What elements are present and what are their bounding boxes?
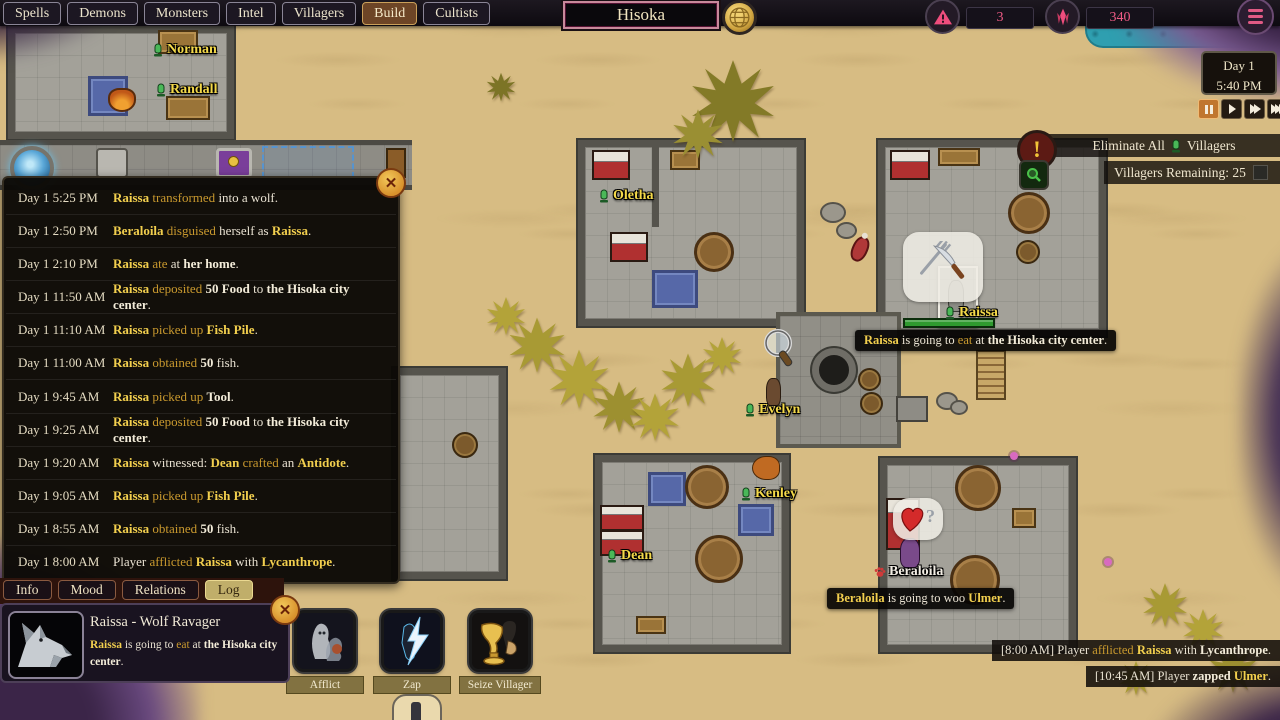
notification-1[interactable]: [8:00 AM] Player afflicted Raissa with L… xyxy=(992,640,1280,661)
villager-marker-icon xyxy=(155,83,167,97)
barrel xyxy=(452,432,478,458)
building-left-mid[interactable] xyxy=(393,368,506,579)
town-name: Hisoka xyxy=(617,5,665,25)
log-entry-text: Raissa picked up Fish Pile. xyxy=(113,322,396,338)
log-entry: Day 1 9:25 AMRaissa deposited 50 Food to… xyxy=(6,414,396,447)
log-entry-time: Day 1 9:20 AM xyxy=(18,455,113,471)
town-name-plate[interactable]: Hisoka xyxy=(563,1,719,29)
villager-label-evelyn[interactable]: Evelyn xyxy=(744,402,800,418)
log-entry-text: Raissa transformed into a wolf. xyxy=(113,190,396,206)
cultist-capsule[interactable] xyxy=(392,694,442,720)
event-log-panel: Day 1 5:25 PMRaissa transformed into a w… xyxy=(2,176,400,584)
villager-name: Kenley xyxy=(755,486,797,502)
log-entry-time: Day 1 9:05 AM xyxy=(18,488,113,504)
villager-name: Oletha xyxy=(613,188,653,204)
table xyxy=(955,465,1001,511)
log-entry-time: Day 1 9:25 AM xyxy=(18,422,113,438)
world-coin-icon[interactable] xyxy=(722,0,757,35)
tab-demons[interactable]: Demons xyxy=(67,2,138,25)
magnifier-item[interactable] xyxy=(758,326,798,368)
carpet xyxy=(648,472,686,506)
well xyxy=(812,348,856,392)
top-bar: SpellsDemonsMonstersIntelVillagersBuildC… xyxy=(0,0,1280,26)
barrel xyxy=(860,392,883,415)
bed xyxy=(890,150,930,180)
map-tooltip-1: Raissa is going to eat at the Hisoka cit… xyxy=(855,330,1116,351)
svg-text:?: ? xyxy=(926,506,935,526)
play-button[interactable] xyxy=(1221,99,1242,119)
event-log-close-button[interactable]: ✕ xyxy=(376,168,406,198)
seize-villager-icon xyxy=(472,613,528,669)
log-entry-text: Raissa witnessed: Dean crafted an Antido… xyxy=(113,455,396,471)
barrel xyxy=(1016,240,1040,264)
map-tooltip-2: Beraloila is going to woo Ulmer. xyxy=(827,588,1014,609)
chest xyxy=(1012,508,1036,528)
warning-resource: 3 xyxy=(925,2,1034,34)
meat xyxy=(847,234,872,264)
log-entry-time: Day 1 5:25 PM xyxy=(18,190,113,206)
kenley-fox-sprite[interactable] xyxy=(752,456,780,480)
pause-button[interactable] xyxy=(1198,99,1219,119)
villager-label-norman[interactable]: Norman xyxy=(152,42,217,58)
log-entry-text: Raissa picked up Tool. xyxy=(113,389,396,405)
table xyxy=(1008,192,1050,234)
seize-villager-button[interactable] xyxy=(469,610,531,672)
log-entry-time: Day 1 8:55 AM xyxy=(18,521,113,537)
villager-marker-icon xyxy=(1170,139,1182,153)
log-entry: Day 1 9:45 AMRaissa picked up Tool. xyxy=(6,380,396,413)
tab-cultists[interactable]: Cultists xyxy=(423,2,490,25)
objective-checkbox[interactable] xyxy=(1253,165,1268,180)
log-entry: Day 1 8:55 AMRaissa obtained 50 fish. xyxy=(6,513,396,546)
log-entry: Day 1 11:00 AMRaissa obtained 50 fish. xyxy=(6,347,396,380)
villager-marker-icon xyxy=(606,549,618,563)
villager-label-raissa[interactable]: Raissa xyxy=(944,305,998,321)
fastest-forward-button[interactable] xyxy=(1267,99,1280,119)
wood-pile xyxy=(976,350,1006,400)
log-entry: Day 1 8:00 AMPlayer afflicted Raissa wit… xyxy=(6,546,396,578)
bed xyxy=(610,232,648,262)
clock-panel: Day 1 5:40 PM xyxy=(1201,51,1277,95)
zap-label: Zap xyxy=(373,676,451,694)
flower xyxy=(1104,558,1112,566)
log-entry-text: Raissa deposited 50 Food to the Hisoka c… xyxy=(113,281,396,313)
warning-triangle-icon[interactable] xyxy=(925,0,960,34)
carpet xyxy=(738,504,774,536)
carpet xyxy=(652,270,698,308)
inspector-tab-info[interactable]: Info xyxy=(3,580,52,600)
log-entry: Day 1 11:50 AMRaissa deposited 50 Food t… xyxy=(6,281,396,314)
bed xyxy=(592,150,630,180)
blueprint-sketch xyxy=(262,146,354,178)
rock xyxy=(950,400,968,415)
speed-controls xyxy=(1198,99,1280,119)
essence-count: 340 xyxy=(1086,7,1154,29)
villager-name: Norman xyxy=(167,42,217,58)
log-entry-text: Raissa ate at her home. xyxy=(113,256,396,272)
log-entry-text: Raissa obtained 50 fish. xyxy=(113,355,396,371)
afflict-label: Afflict xyxy=(286,676,364,694)
seize-villager-label: Seize Villager xyxy=(459,676,541,694)
log-entry: Day 1 11:10 AMRaissa picked up Fish Pile… xyxy=(6,314,396,347)
eat-thought-bubble xyxy=(903,232,983,302)
objective-text-suffix: Villagers xyxy=(1187,138,1236,154)
bed xyxy=(600,505,644,531)
tab-spells[interactable]: Spells xyxy=(3,2,61,25)
log-entry-text: Raissa picked up Fish Pile. xyxy=(113,488,396,504)
log-entry: Day 1 9:05 AMRaissa picked up Fish Pile. xyxy=(6,480,396,513)
log-entry: Day 1 5:25 PMRaissa transformed into a w… xyxy=(6,182,396,215)
villager-label-beraloila[interactable]: Beraloila xyxy=(874,564,943,580)
tab-intel[interactable]: Intel xyxy=(226,2,276,25)
game-screen: ? NormanRandallOlethaEvelynKenleyDeanRai… xyxy=(0,0,1280,720)
inspector-tabs: InfoMoodRelationsLog xyxy=(3,580,253,600)
log-entry-text: Raissa obtained 50 fish. xyxy=(113,521,396,537)
villager-name: Dean xyxy=(621,548,652,564)
log-entry-time: Day 1 9:45 AM xyxy=(18,389,113,405)
clock-day: Day 1 xyxy=(1203,56,1275,76)
log-entry-time: Day 1 2:10 PM xyxy=(18,256,113,272)
villager-label-dean[interactable]: Dean xyxy=(606,548,652,564)
villager-label-kenley[interactable]: Kenley xyxy=(740,486,797,502)
inspector-close-button[interactable]: ✕ xyxy=(270,595,300,625)
log-entry-text: Raissa deposited 50 Food to the Hisoka c… xyxy=(113,414,396,446)
woo-thought-bubble: ? xyxy=(893,498,943,540)
altar xyxy=(96,148,128,178)
shelf xyxy=(938,148,980,166)
portrait-frame[interactable] xyxy=(8,611,84,679)
log-entry-text: Player afflicted Raissa with Lycanthrope… xyxy=(113,554,396,570)
tab-monsters[interactable]: Monsters xyxy=(144,2,220,25)
tab-villagers[interactable]: Villagers xyxy=(282,2,356,25)
log-entry: Day 1 2:10 PMRaissa ate at her home. xyxy=(6,248,396,281)
cart xyxy=(896,396,928,422)
notification-stack: [8:00 AM] Player afflicted Raissa with L… xyxy=(992,640,1280,687)
crystal-icon[interactable] xyxy=(1045,0,1080,34)
lute xyxy=(636,616,666,634)
villager-label-randall[interactable]: Randall xyxy=(155,82,217,98)
villager-marker-icon xyxy=(740,487,752,501)
log-entry-time: Day 1 11:00 AM xyxy=(18,355,113,371)
villager-marker-icon xyxy=(744,403,756,417)
villagers-remaining-bar: Villagers Remaining: 25 xyxy=(1104,161,1280,184)
wolf-portrait xyxy=(10,613,78,673)
table xyxy=(695,535,743,583)
fork-knife-icon xyxy=(915,241,971,293)
zap-button[interactable] xyxy=(381,610,443,672)
warning-count: 3 xyxy=(966,7,1034,29)
treasure-chest xyxy=(216,148,252,178)
clock-time: 5:40 PM xyxy=(1203,76,1275,96)
paw-icon xyxy=(874,565,886,579)
campfire xyxy=(108,88,136,112)
essence-resource: 340 xyxy=(1045,2,1154,34)
villager-label-oletha[interactable]: Oletha xyxy=(598,188,653,204)
objective-banner: Eliminate All Villagers xyxy=(1048,134,1280,157)
villager-name: Evelyn xyxy=(759,402,800,418)
inspector-title: Raissa - Wolf Ravager xyxy=(90,614,220,631)
log-entry: Day 1 2:50 PMBeraloila disguised herself… xyxy=(6,215,396,248)
rock xyxy=(820,202,846,223)
log-entry-time: Day 1 11:10 AM xyxy=(18,322,113,338)
log-entry-text: Beraloila disguised herself as Raissa. xyxy=(113,223,396,239)
log-entry-time: Day 1 11:50 AM xyxy=(18,289,113,305)
villager-name: Beraloila xyxy=(889,564,943,580)
fast-forward-button[interactable] xyxy=(1244,99,1265,119)
inspector-tab-mood[interactable]: Mood xyxy=(58,580,116,600)
table xyxy=(694,232,734,272)
inspector-status-text: Raissa is going to eat at the Hisoka cit… xyxy=(90,637,282,670)
villager-marker-icon xyxy=(598,189,610,203)
afflict-icon xyxy=(297,613,353,669)
main-menu-tabs: SpellsDemonsMonstersIntelVillagersBuildC… xyxy=(3,2,490,25)
notification-2[interactable]: [10:45 AM] Player zapped Ulmer. xyxy=(1086,666,1280,687)
inspector-tab-log[interactable]: Log xyxy=(205,580,253,600)
flower xyxy=(1010,452,1018,460)
inspector-panel: Raissa - Wolf Ravager Raissa is going to… xyxy=(0,603,290,683)
villager-marker-icon xyxy=(152,43,164,57)
afflict-button[interactable] xyxy=(294,610,356,672)
table xyxy=(685,465,729,509)
log-entry-time: Day 1 8:00 AM xyxy=(18,554,113,570)
objective-text-prefix: Eliminate All xyxy=(1092,138,1164,154)
inspector-tab-relations[interactable]: Relations xyxy=(122,580,199,600)
log-entry: Day 1 9:20 AMRaissa witnessed: Dean craf… xyxy=(6,447,396,480)
heart-question-icon: ? xyxy=(898,504,938,534)
barrel xyxy=(858,368,881,391)
zap-icon xyxy=(384,613,440,669)
villager-name: Raissa xyxy=(959,305,998,321)
rock xyxy=(836,222,857,239)
villager-marker-icon xyxy=(944,306,956,320)
inner-wall xyxy=(652,147,659,227)
zoom-to-objective-button[interactable] xyxy=(1019,160,1049,190)
log-entry-time: Day 1 2:50 PM xyxy=(18,223,113,239)
tab-build[interactable]: Build xyxy=(362,2,417,25)
villager-name: Randall xyxy=(170,82,217,98)
villagers-remaining-text: Villagers Remaining: 25 xyxy=(1114,165,1246,181)
crate xyxy=(166,96,210,120)
